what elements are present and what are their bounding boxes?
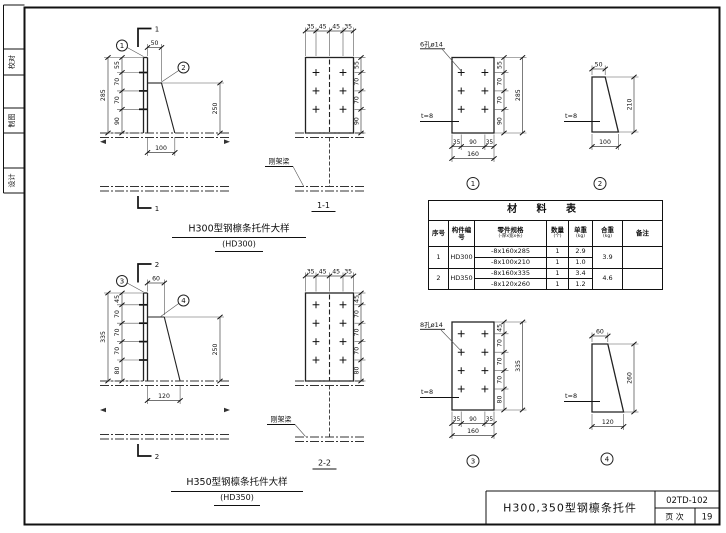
section-1-1-drawing: 35 45 45 35 55 70 70 90 刚架梁 1-1	[265, 24, 366, 212]
col-header-no: 序号	[429, 221, 449, 247]
detail-3-holes	[458, 330, 488, 392]
section-1-1-caption: 1-1	[317, 201, 330, 210]
detail-2-gusset	[592, 77, 618, 132]
dim-label: 50	[151, 40, 159, 47]
h350-drawing-subtitle: (HD350)	[220, 493, 254, 502]
material-table: 材 料 表 序号 构件编号 零件规格(-厚x宽x长) 数量(个) 单重(kg) …	[428, 200, 662, 290]
dim-label: 45	[319, 24, 327, 31]
cell-spec: -8x120x260	[475, 279, 547, 290]
cell-spec: -8x100x210	[475, 257, 547, 268]
dim-label: 250	[212, 344, 219, 356]
detail-1-thickness-label: t=8	[421, 112, 433, 120]
dim-label: 70	[114, 347, 121, 355]
cell-unit-weight: 2.9	[569, 247, 593, 258]
detail-3-holes-label: 8孔ø14	[420, 321, 443, 329]
cell-no: 1	[429, 247, 449, 269]
detail-4-gusset-drawing: 60 260 120 t=8 4	[564, 329, 639, 466]
section-2-2-drawing: 35 45 45 35 45 70 70 70 80 刚架梁 2-2	[267, 269, 366, 470]
cell-qty: 1	[547, 268, 569, 279]
dim-label: 210	[627, 99, 634, 111]
detail-3-caption-number: 3	[471, 458, 475, 466]
dim-label: 70	[114, 328, 121, 336]
dim-label: 120	[602, 419, 614, 426]
cell-no: 2	[429, 268, 449, 290]
dim-label: 35	[486, 417, 494, 423]
title-block: H300,350型钢檩条托件 02TD-102 页 次 19	[486, 491, 719, 525]
dim-label: 55	[497, 61, 504, 69]
dim-label: 80	[114, 367, 121, 375]
cell-remark	[623, 268, 663, 290]
col-header-total-weight-sub: (kg)	[594, 235, 620, 240]
cell-remark	[623, 247, 663, 269]
table-row: 1 HD300 -8x160x285 1 2.9 3.9	[429, 247, 663, 258]
cell-unit-weight: 1.2	[569, 279, 593, 290]
title-block-page-label: 页 次	[665, 512, 684, 522]
h300-plate-edge-view	[144, 58, 148, 134]
detail-2-caption-number: 2	[598, 180, 602, 188]
h300-section-mark-bottom: 1	[155, 205, 159, 213]
h300-elevation-drawing: 1 1 1 2 50 55 70 70 90 285 250 100 H300型…	[100, 26, 306, 252]
col-header-total-weight: 合重(kg)	[593, 221, 623, 247]
dim-label: 45	[332, 269, 340, 276]
h350-elevation-drawing: 2 2 3 4 60 45 70 70 70 80 335 250 120 H3…	[100, 261, 303, 506]
cell-qty: 1	[547, 279, 569, 290]
h300-section-mark-top: 1	[155, 26, 159, 34]
dim-label: 90	[497, 117, 504, 125]
dim-label: 285	[515, 89, 522, 101]
h350-drawing-title: H350型钢檩条托件大样	[186, 476, 287, 488]
sidebar-label-design: 设计	[7, 174, 16, 188]
cell-qty: 1	[547, 257, 569, 268]
section-2-2-caption: 2-2	[318, 459, 331, 468]
dim-label: 70	[114, 78, 121, 86]
cell-member: HD350	[449, 268, 475, 290]
drawing-sheet: 校对 制图 设计	[0, 0, 726, 533]
h300-elevation-dim-ticks	[105, 45, 222, 154]
dim-label: 80	[354, 367, 361, 375]
dim-label: 50	[595, 62, 603, 69]
h350-section-mark-top: 2	[155, 261, 159, 269]
dim-label: 35	[307, 269, 315, 276]
cell-total-weight: 3.9	[593, 247, 623, 269]
dim-label: 70	[354, 310, 361, 318]
detail-3-thickness-label: t=8	[421, 388, 433, 396]
cell-unit-weight: 1.0	[569, 257, 593, 268]
dim-label: 45	[497, 324, 504, 332]
col-header-spec: 零件规格(-厚x宽x长)	[475, 221, 547, 247]
cell-member: HD300	[449, 247, 475, 269]
title-block-drawing-number: 02TD-102	[666, 496, 708, 506]
beam-callout-label: 刚架梁	[269, 157, 290, 166]
h350-beam-flanges	[100, 381, 230, 439]
dim-label: 35	[344, 24, 352, 31]
material-table-title: 材 料 表	[429, 201, 663, 221]
title-block-drawing-title: H300,350型钢檩条托件	[503, 501, 637, 515]
dim-label: 335	[100, 331, 107, 343]
dim-label: 60	[152, 276, 160, 283]
col-header-qty-sub: (个)	[548, 235, 567, 240]
dim-label: 90	[354, 117, 361, 125]
balloon-1-number: 1	[120, 42, 124, 50]
dim-label: 100	[599, 139, 611, 146]
dim-label: 70	[497, 96, 504, 104]
dim-label: 250	[212, 103, 219, 115]
dim-label: 35	[486, 140, 494, 146]
dim-label: 35	[453, 417, 461, 423]
balloon-3-number: 3	[120, 278, 124, 286]
dim-label: 55	[354, 61, 361, 69]
sidebar-label-draft: 制图	[7, 114, 16, 128]
detail-4-caption-number: 4	[605, 456, 610, 464]
dim-label: 70	[354, 96, 361, 104]
dim-label: 70	[497, 78, 504, 86]
dim-label: 90	[469, 417, 477, 423]
dim-label: 120	[158, 393, 170, 400]
dim-label: 70	[354, 347, 361, 355]
dim-label: 70	[114, 96, 121, 104]
detail-1-plate-drawing: 6孔ø14 t=8	[420, 41, 527, 190]
cell-unit-weight: 3.4	[569, 268, 593, 279]
dim-label: 90	[114, 117, 121, 125]
col-header-unit-weight: 单重(kg)	[569, 221, 593, 247]
h350-beam-break-arrows	[100, 408, 230, 413]
dim-label: 55	[114, 61, 121, 69]
detail-3-plate-drawing: 8孔ø14 t=8	[420, 320, 527, 467]
dim-label: 160	[467, 151, 479, 158]
h300-gusset-edge-view	[148, 83, 175, 133]
h350-section-mark-bottom: 2	[155, 453, 159, 461]
dim-label: 35	[344, 269, 352, 276]
detail-1-holes-label: 6孔ø14	[420, 41, 443, 49]
section-2-2-extension-lines	[306, 273, 366, 382]
dim-label: 160	[467, 428, 479, 435]
sidebar-label-check: 校对	[7, 55, 16, 69]
dim-label: 45	[354, 295, 361, 303]
dim-label: 260	[627, 372, 634, 384]
dim-label: 70	[354, 328, 361, 336]
dim-label: 90	[469, 140, 477, 146]
dim-label: 70	[354, 78, 361, 86]
dim-label: 45	[114, 295, 121, 303]
h300-drawing-title: H300型钢檩条托件大样	[188, 223, 289, 235]
dim-label: 285	[100, 89, 107, 101]
balloon-4-number: 4	[181, 297, 186, 305]
title-block-page-number: 19	[702, 513, 713, 523]
dim-label: 70	[497, 376, 504, 384]
cell-spec: -8x160x285	[475, 247, 547, 258]
dim-label: 70	[497, 357, 504, 365]
h300-beam-flanges	[100, 133, 230, 191]
dim-label: 45	[319, 269, 327, 276]
h300-drawing-subtitle: (HD300)	[222, 240, 256, 249]
balloon-2-number: 2	[181, 64, 185, 72]
table-row: 2 HD350 -8x160x335 1 3.4 4.6	[429, 268, 663, 279]
detail-1-caption-number: 1	[471, 180, 475, 188]
dim-label: 60	[596, 329, 604, 336]
dim-label: 35	[307, 24, 315, 31]
cell-spec: -8x160x335	[475, 268, 547, 279]
dim-label: 80	[497, 396, 504, 404]
cell-qty: 1	[547, 247, 569, 258]
cell-total-weight: 4.6	[593, 268, 623, 290]
h300-beam-break-arrows	[100, 139, 230, 144]
dim-label: 335	[515, 360, 522, 372]
col-header-unit-weight-sub: (kg)	[570, 235, 591, 240]
detail-4-thickness-label: t=8	[565, 392, 577, 400]
col-header-spec-sub: (-厚x宽x长)	[479, 235, 543, 240]
detail-2-gusset-drawing: 50 210 100 t=8 2	[564, 62, 639, 190]
h350-gusset-edge-view	[148, 317, 181, 381]
col-header-remark: 备注	[623, 221, 663, 247]
h350-plate-edge-view	[144, 293, 148, 381]
col-header-member: 构件编号	[449, 221, 475, 247]
h300-elevation-dim-lines	[108, 48, 220, 153]
detail-1-holes	[458, 69, 488, 113]
dim-label: 45	[332, 24, 340, 31]
dim-label: 70	[497, 339, 504, 347]
detail-3-plate	[452, 322, 494, 410]
h300-section-cut-marks	[138, 29, 152, 209]
dim-label: 70	[114, 310, 121, 318]
col-header-qty: 数量(个)	[547, 221, 569, 247]
dim-label: 100	[155, 145, 167, 152]
dim-label: 35	[453, 140, 461, 146]
detail-2-thickness-label: t=8	[565, 112, 577, 120]
beam-callout-label: 刚架梁	[271, 415, 292, 424]
